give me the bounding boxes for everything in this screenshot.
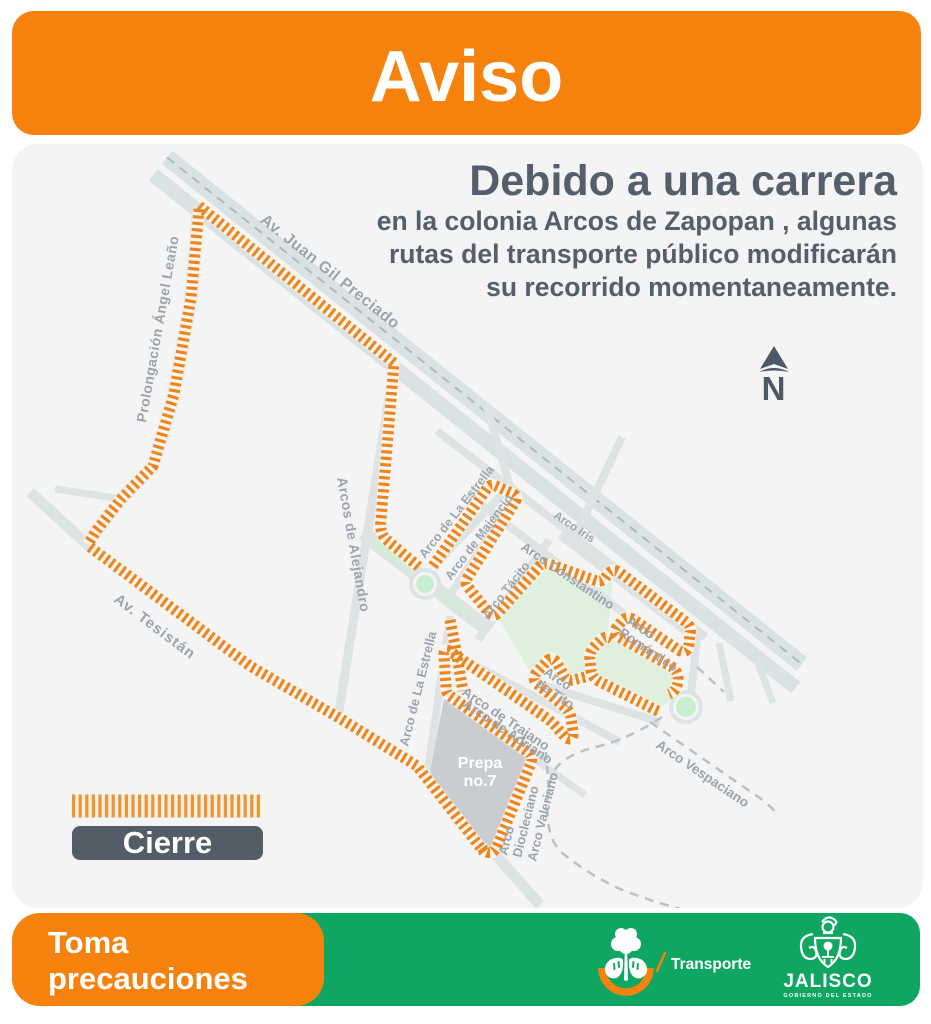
svg-text:JALISCO: JALISCO	[783, 971, 872, 992]
svg-text:Transporte: Transporte	[671, 956, 751, 973]
svg-text:no.7: no.7	[464, 773, 497, 790]
svg-text:N: N	[762, 370, 786, 407]
svg-text:GOBIERNO DEL ESTADO: GOBIERNO DEL ESTADO	[783, 993, 872, 999]
svg-text:Prepa: Prepa	[458, 755, 503, 772]
svg-text:Arco Vespaciano: Arco Vespaciano	[653, 737, 752, 810]
